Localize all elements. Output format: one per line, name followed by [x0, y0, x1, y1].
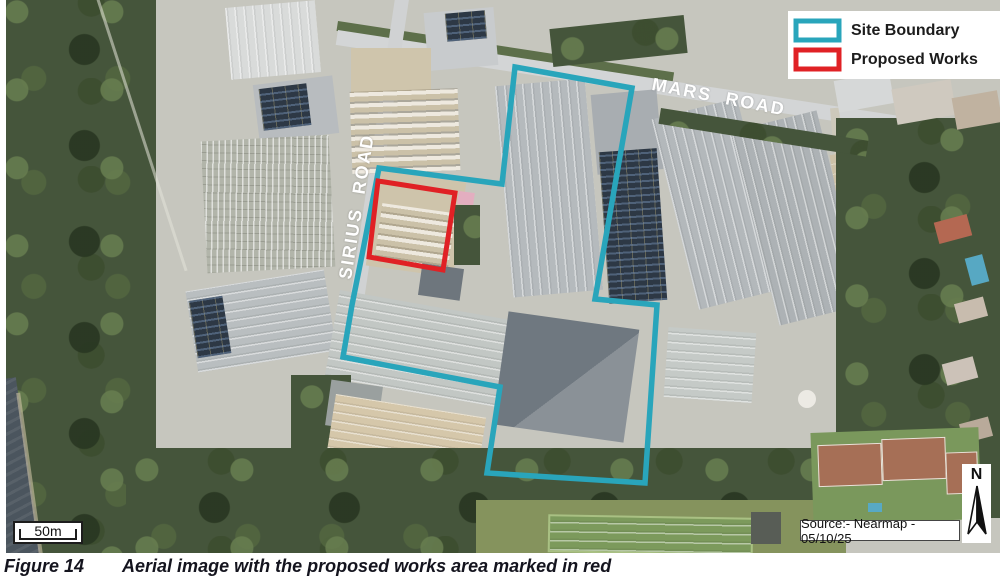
tree-row	[549, 15, 687, 67]
north-arrow-icon	[965, 484, 989, 540]
tennis-court	[881, 437, 946, 481]
parking-dark	[751, 512, 781, 544]
proposed-works-swatch	[793, 47, 842, 72]
figure-caption: Figure 14Aerial image with the proposed …	[4, 556, 611, 577]
pool	[868, 503, 882, 512]
page: MARS ROAD SIRIUS ROAD Site Boundary Prop…	[0, 0, 1000, 582]
source-note: Source:- Nearmap - 05/10/25	[800, 520, 960, 541]
figure-number: Figure 14	[4, 556, 84, 576]
solar-array	[599, 148, 667, 304]
factory-roof	[495, 78, 603, 297]
legend-label: Proposed Works	[851, 51, 978, 69]
solar-roof	[445, 10, 487, 41]
cemetery	[201, 135, 336, 274]
sports-field	[548, 514, 754, 553]
legend-item-site-boundary: Site Boundary	[793, 18, 1000, 43]
small-building	[418, 263, 464, 301]
building-roof	[225, 0, 321, 80]
north-label: N	[971, 466, 983, 484]
trailer-yard	[374, 203, 455, 271]
factory-roof	[493, 311, 640, 442]
legend-item-proposed-works: Proposed Works	[793, 47, 1000, 72]
legend-label: Site Boundary	[851, 22, 959, 40]
scale-bar-bracket	[19, 529, 77, 540]
north-arrow: N	[962, 464, 991, 543]
legend: Site Boundary Proposed Works	[788, 11, 1000, 79]
small-roof	[457, 191, 475, 206]
figure-caption-text: Aerial image with the proposed works are…	[122, 556, 611, 576]
warehouse-roof	[664, 327, 757, 403]
aerial-map: MARS ROAD SIRIUS ROAD Site Boundary Prop…	[6, 0, 1000, 553]
tree-patch	[454, 205, 480, 265]
solar-roof	[259, 83, 312, 131]
site-boundary-swatch	[793, 18, 842, 43]
tennis-court	[817, 443, 882, 487]
observatory-dome	[798, 390, 816, 408]
scale-bar: 50m	[13, 521, 83, 544]
